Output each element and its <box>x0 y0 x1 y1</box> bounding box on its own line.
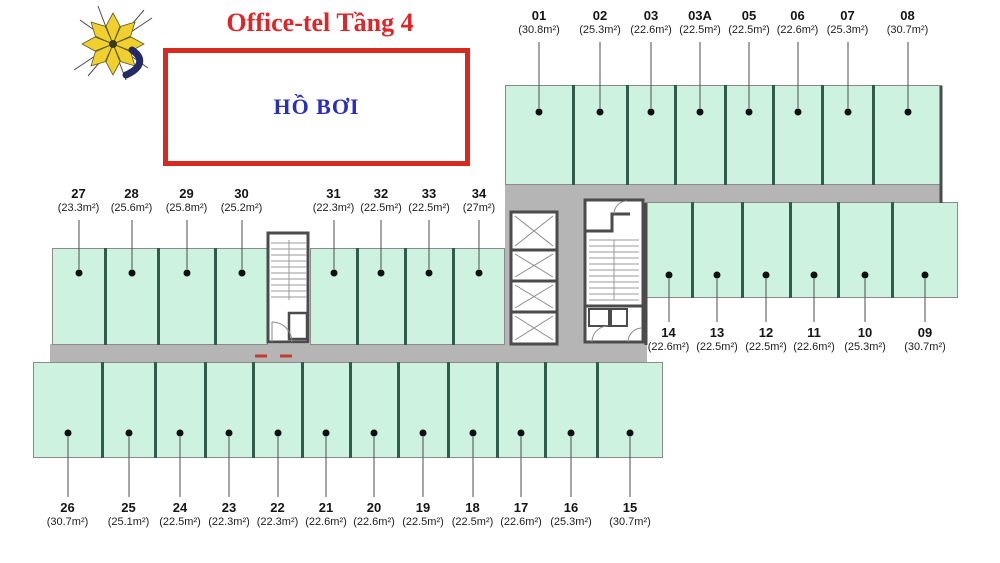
unit-number: 24 <box>159 500 201 516</box>
unit-label-11: 11(22.6m²) <box>793 325 835 354</box>
unit-area: (22.6m²) <box>793 341 835 354</box>
unit-label-21: 21(22.6m²) <box>305 500 347 529</box>
unit-leader-26 <box>67 437 68 497</box>
unit-number: 20 <box>353 500 395 516</box>
unit-number: 08 <box>887 8 929 24</box>
unit-label-25: 25(25.1m²) <box>108 500 150 529</box>
pinwheel-flower-logo-icon <box>68 4 168 94</box>
unit-leader-06 <box>797 42 798 108</box>
unit-marker-dot-18 <box>469 430 476 437</box>
unit-area: (23.3m²) <box>58 202 100 215</box>
unit-label-18: 18(22.5m²) <box>452 500 494 529</box>
unit-label-30: 30(25.2m²) <box>221 186 263 215</box>
unit-label-22: 22(22.3m²) <box>257 500 299 529</box>
unit-label-05: 05(22.5m²) <box>728 8 770 37</box>
unit-marker-dot-02 <box>597 109 604 116</box>
unit-leader-16 <box>571 437 572 497</box>
unit-marker-dot-25 <box>125 430 132 437</box>
unit-leader-15 <box>630 437 631 497</box>
pool-box: HỒ BƠI <box>163 48 470 166</box>
unit-label-26: 26(30.7m²) <box>47 500 89 529</box>
unit-marker-dot-03A <box>697 109 704 116</box>
unit-label-31: 31(22.3m²) <box>313 186 355 215</box>
unit-leader-28 <box>131 220 132 269</box>
unit-label-07: 07(25.3m²) <box>827 8 869 37</box>
unit-label-32: 32(22.5m²) <box>360 186 402 215</box>
unit-area: (30.7m²) <box>887 24 929 37</box>
unit-number: 15 <box>609 500 651 516</box>
unit-marker-dot-26 <box>64 430 71 437</box>
elevator-bank-icon <box>511 212 557 344</box>
unit-number: 14 <box>648 325 690 341</box>
stairwell-main-icon <box>585 200 643 342</box>
unit-area: (22.3m²) <box>208 516 250 529</box>
unit-area: (22.5m²) <box>452 516 494 529</box>
unit-area: (22.6m²) <box>500 516 542 529</box>
unit-label-17: 17(22.6m²) <box>500 500 542 529</box>
unit-label-20: 20(22.6m²) <box>353 500 395 529</box>
unit-label-03: 03(22.6m²) <box>630 8 672 37</box>
unit-marker-dot-22 <box>274 430 281 437</box>
unit-label-23: 23(22.3m²) <box>208 500 250 529</box>
unit-marker-dot-11 <box>811 272 818 279</box>
unit-marker-dot-12 <box>763 272 770 279</box>
unit-leader-03A <box>700 42 701 108</box>
unit-area: (22.6m²) <box>353 516 395 529</box>
unit-label-27: 27(23.3m²) <box>58 186 100 215</box>
unit-marker-dot-34 <box>476 270 483 277</box>
unit-label-19: 19(22.5m²) <box>402 500 444 529</box>
floorplan-canvas: Office-tel Tầng 4 HỒ BƠI 01(30.8m²)02(25… <box>0 0 1000 563</box>
unit-number: 30 <box>221 186 263 202</box>
unit-leader-27 <box>78 220 79 269</box>
unit-label-28: 28(25.6m²) <box>111 186 153 215</box>
unit-number: 21 <box>305 500 347 516</box>
unit-marker-dot-19 <box>420 430 427 437</box>
unit-area: (25.3m²) <box>579 24 621 37</box>
unit-marker-dot-03 <box>648 109 655 116</box>
unit-label-01: 01(30.8m²) <box>518 8 560 37</box>
unit-label-29: 29(25.8m²) <box>166 186 208 215</box>
unit-label-34: 34(27m²) <box>463 186 495 215</box>
unit-leader-19 <box>423 437 424 497</box>
unit-leader-31 <box>333 220 334 269</box>
unit-area: (22.5m²) <box>696 341 738 354</box>
unit-leader-32 <box>381 220 382 269</box>
unit-area: (25.1m²) <box>108 516 150 529</box>
unit-number: 23 <box>208 500 250 516</box>
unit-number: 03A <box>679 8 721 24</box>
unit-area: (25.3m²) <box>827 24 869 37</box>
unit-marker-dot-05 <box>746 109 753 116</box>
unit-number: 07 <box>827 8 869 24</box>
unit-leader-30 <box>241 220 242 269</box>
unit-leader-09 <box>925 279 926 322</box>
unit-number: 33 <box>408 186 450 202</box>
unit-marker-dot-16 <box>568 430 575 437</box>
unit-area: (22.5m²) <box>402 516 444 529</box>
unit-leader-11 <box>814 279 815 322</box>
stairwell-left-icon <box>268 233 308 342</box>
unit-leader-20 <box>374 437 375 497</box>
unit-area: (22.6m²) <box>777 24 819 37</box>
unit-number: 02 <box>579 8 621 24</box>
unit-area: (22.3m²) <box>313 202 355 215</box>
unit-marker-dot-21 <box>323 430 330 437</box>
unit-area: (30.7m²) <box>609 516 651 529</box>
unit-leader-23 <box>229 437 230 497</box>
unit-number: 25 <box>108 500 150 516</box>
unit-number: 03 <box>630 8 672 24</box>
unit-leader-08 <box>907 42 908 108</box>
unit-number: 09 <box>904 325 946 341</box>
unit-marker-dot-06 <box>794 109 801 116</box>
unit-number: 29 <box>166 186 208 202</box>
unit-marker-dot-23 <box>226 430 233 437</box>
unit-leader-07 <box>847 42 848 108</box>
unit-marker-dot-15 <box>627 430 634 437</box>
unit-area: (25.3m²) <box>550 516 592 529</box>
unit-label-15: 15(30.7m²) <box>609 500 651 529</box>
unit-leader-24 <box>180 437 181 497</box>
unit-leader-13 <box>717 279 718 322</box>
unit-number: 31 <box>313 186 355 202</box>
unit-marker-dot-28 <box>128 270 135 277</box>
unit-area: (27m²) <box>463 202 495 215</box>
unit-marker-dot-14 <box>665 272 672 279</box>
unit-label-02: 02(25.3m²) <box>579 8 621 37</box>
unit-label-16: 16(25.3m²) <box>550 500 592 529</box>
unit-label-08: 08(30.7m²) <box>887 8 929 37</box>
unit-number: 10 <box>844 325 886 341</box>
unit-marker-dot-13 <box>714 272 721 279</box>
unit-area: (25.8m²) <box>166 202 208 215</box>
unit-number: 28 <box>111 186 153 202</box>
unit-area: (22.6m²) <box>630 24 672 37</box>
unit-marker-dot-29 <box>183 270 190 277</box>
unit-marker-dot-09 <box>922 272 929 279</box>
unit-area: (25.2m²) <box>221 202 263 215</box>
unit-number: 11 <box>793 325 835 341</box>
unit-leader-10 <box>865 279 866 322</box>
unit-area: (22.5m²) <box>408 202 450 215</box>
unit-number: 19 <box>402 500 444 516</box>
unit-label-24: 24(22.5m²) <box>159 500 201 529</box>
unit-label-03A: 03A(22.5m²) <box>679 8 721 37</box>
unit-area: (30.8m²) <box>518 24 560 37</box>
unit-leader-14 <box>668 279 669 322</box>
unit-area: (22.5m²) <box>679 24 721 37</box>
unit-number: 18 <box>452 500 494 516</box>
unit-marker-dot-10 <box>862 272 869 279</box>
unit-area: (22.5m²) <box>360 202 402 215</box>
unit-leader-34 <box>479 220 480 269</box>
unit-marker-dot-17 <box>518 430 525 437</box>
unit-leader-12 <box>766 279 767 322</box>
pool-label: HỒ BƠI <box>273 94 359 120</box>
unit-label-09: 09(30.7m²) <box>904 325 946 354</box>
unit-area: (22.5m²) <box>745 341 787 354</box>
unit-number: 06 <box>777 8 819 24</box>
unit-marker-dot-27 <box>75 270 82 277</box>
unit-number: 01 <box>518 8 560 24</box>
unit-label-12: 12(22.5m²) <box>745 325 787 354</box>
unit-area: (22.6m²) <box>305 516 347 529</box>
unit-area: (22.5m²) <box>728 24 770 37</box>
unit-leader-18 <box>472 437 473 497</box>
unit-marker-dot-33 <box>426 270 433 277</box>
unit-marker-dot-32 <box>378 270 385 277</box>
unit-marker-dot-24 <box>177 430 184 437</box>
unit-number: 26 <box>47 500 89 516</box>
unit-marker-dot-31 <box>330 270 337 277</box>
unit-label-06: 06(22.6m²) <box>777 8 819 37</box>
unit-leader-05 <box>749 42 750 108</box>
unit-area: (22.6m²) <box>648 341 690 354</box>
unit-area: (22.5m²) <box>159 516 201 529</box>
unit-label-10: 10(25.3m²) <box>844 325 886 354</box>
unit-leader-29 <box>186 220 187 269</box>
unit-area: (22.3m²) <box>257 516 299 529</box>
unit-marker-dot-20 <box>371 430 378 437</box>
unit-area: (25.6m²) <box>111 202 153 215</box>
unit-number: 05 <box>728 8 770 24</box>
unit-leader-01 <box>539 42 540 108</box>
unit-area: (30.7m²) <box>47 516 89 529</box>
unit-label-13: 13(22.5m²) <box>696 325 738 354</box>
unit-area: (30.7m²) <box>904 341 946 354</box>
unit-leader-21 <box>326 437 327 497</box>
unit-number: 17 <box>500 500 542 516</box>
unit-leader-03 <box>651 42 652 108</box>
unit-marker-dot-08 <box>904 109 911 116</box>
unit-marker-dot-30 <box>238 270 245 277</box>
unit-number: 27 <box>58 186 100 202</box>
page-title: Office-tel Tầng 4 <box>165 8 475 38</box>
unit-number: 22 <box>257 500 299 516</box>
unit-number: 12 <box>745 325 787 341</box>
unit-leader-02 <box>600 42 601 108</box>
unit-leader-33 <box>429 220 430 269</box>
unit-leader-25 <box>128 437 129 497</box>
unit-number: 34 <box>463 186 495 202</box>
unit-number: 16 <box>550 500 592 516</box>
unit-number: 32 <box>360 186 402 202</box>
unit-label-14: 14(22.6m²) <box>648 325 690 354</box>
unit-leader-17 <box>521 437 522 497</box>
unit-marker-dot-07 <box>844 109 851 116</box>
unit-area: (25.3m²) <box>844 341 886 354</box>
unit-marker-dot-01 <box>536 109 543 116</box>
unit-label-33: 33(22.5m²) <box>408 186 450 215</box>
unit-number: 13 <box>696 325 738 341</box>
unit-leader-22 <box>277 437 278 497</box>
